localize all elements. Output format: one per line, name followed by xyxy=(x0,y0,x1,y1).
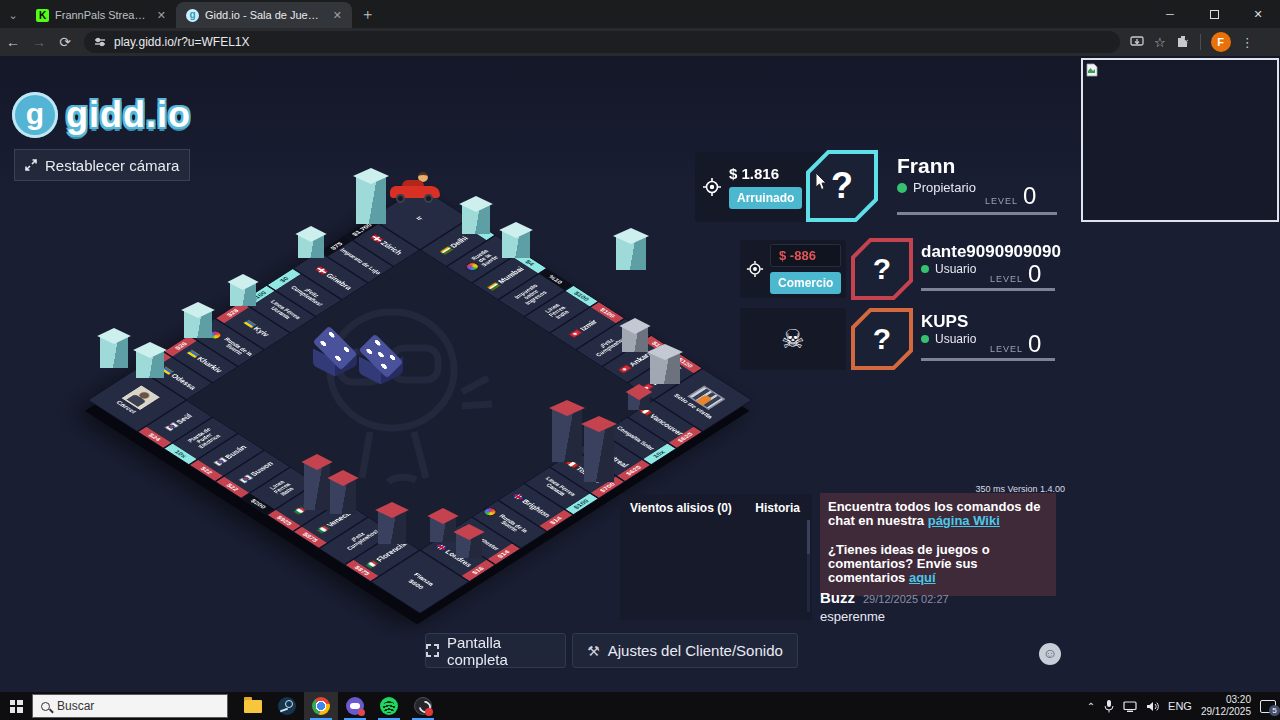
emoji-button[interactable]: ☺ xyxy=(1039,643,1061,665)
start-button[interactable] xyxy=(0,692,32,720)
tab-trade-winds[interactable]: Vientos alisios (0) xyxy=(630,501,732,515)
flag-kr-icon xyxy=(165,422,179,431)
giddio-logo-text: gidd.io xyxy=(66,94,191,136)
online-dot xyxy=(897,183,907,193)
die xyxy=(358,336,404,382)
close-button[interactable]: ✕ xyxy=(1236,0,1280,28)
chat-author: Buzz xyxy=(820,589,855,606)
microphone-icon[interactable] xyxy=(1104,700,1114,713)
player2-level-bar xyxy=(921,288,1055,291)
kick-favicon: K xyxy=(36,9,49,22)
player1-money: $ 1.816 xyxy=(729,165,802,182)
flag-kr-icon xyxy=(239,474,253,483)
die xyxy=(312,328,358,374)
steam-icon[interactable] xyxy=(270,692,304,720)
install-icon[interactable] xyxy=(1130,36,1144,48)
building xyxy=(100,328,128,368)
winds-history-panel: Vientos alisios (0) Historia xyxy=(620,494,812,620)
broken-image-icon xyxy=(1086,63,1098,77)
player1-name: Frann xyxy=(897,154,955,178)
new-tab-button[interactable]: ＋ xyxy=(360,5,375,24)
feedback-link[interactable]: aquí xyxy=(909,570,936,585)
obs-icon[interactable] xyxy=(406,692,440,720)
player2-level: LEVEL 0 xyxy=(990,260,1041,288)
game-page: Ir Sólo de visita Fianza $600 Cárcel $2D… xyxy=(0,56,1280,692)
online-dot xyxy=(921,265,929,273)
taskbar-apps xyxy=(236,692,440,720)
profile-avatar[interactable]: F xyxy=(1211,32,1231,52)
building xyxy=(230,274,256,306)
building xyxy=(378,502,406,544)
player1-level-bar xyxy=(897,212,1057,215)
fullscreen-icon xyxy=(426,644,439,657)
taskbar-search[interactable]: Buscar xyxy=(32,694,228,718)
clock-date: 29/12/2025 xyxy=(1201,706,1251,718)
tab-search-chevron-icon[interactable]: ⌄ xyxy=(0,2,26,28)
search-icon xyxy=(41,702,50,711)
player1-role: Propietario xyxy=(897,180,976,195)
giddio-favicon: g xyxy=(186,9,199,22)
system-tray: ⌃ ENG 03:20 29/12/2025 5 xyxy=(1087,692,1276,720)
target-icon[interactable] xyxy=(746,260,764,278)
tab-title: FrannPals Stream - Watch Live xyxy=(55,9,149,21)
volume-icon[interactable] xyxy=(1146,701,1159,712)
building xyxy=(304,454,330,510)
scrollbar[interactable] xyxy=(807,520,810,612)
building xyxy=(650,344,680,384)
player3-status-box: ☠ xyxy=(740,308,846,370)
back-icon[interactable]: ← xyxy=(0,34,26,50)
chrome-icon[interactable] xyxy=(304,692,338,720)
giddio-logo-icon: g xyxy=(12,92,58,138)
player3-level: LEVEL 0 xyxy=(990,330,1041,358)
online-dot xyxy=(921,335,929,343)
target-icon[interactable] xyxy=(702,177,722,197)
stream-overlay-box xyxy=(1081,58,1279,222)
building xyxy=(622,318,648,352)
mouse-cursor xyxy=(812,172,828,192)
building xyxy=(616,228,646,270)
player1-level: LEVEL 0 xyxy=(985,182,1036,210)
player2-money: $ -886 xyxy=(770,244,841,267)
notification-badge: 5 xyxy=(1269,705,1280,716)
chat-message-header: Buzz 29/12/2025 02:27 xyxy=(820,589,949,606)
reload-icon[interactable]: ⟳ xyxy=(52,34,78,50)
tab-close-icon[interactable]: ✕ xyxy=(155,9,168,22)
player1-action-button[interactable]: Arruinado xyxy=(729,187,802,209)
player2-name: dante9090909090 xyxy=(921,242,1061,262)
divider xyxy=(1200,34,1201,50)
chat-wiki-message: Encuentra todos los comandos de chat en … xyxy=(820,493,1056,596)
skull-icon: ☠ xyxy=(781,324,804,355)
building xyxy=(552,400,582,462)
tab-history[interactable]: Historia xyxy=(755,501,800,515)
notification-icon[interactable]: 5 xyxy=(1260,700,1276,713)
discord-icon[interactable] xyxy=(338,692,372,720)
reset-camera-button[interactable]: Restablecer cámara xyxy=(14,149,190,181)
menu-kebab-icon[interactable]: ⋮ xyxy=(1241,35,1254,50)
minimize-button[interactable]: ─ xyxy=(1148,0,1192,28)
building xyxy=(330,470,356,514)
player1-money-box: $ 1.816 Arruinado xyxy=(695,152,825,222)
giddio-logo[interactable]: g gidd.io xyxy=(12,92,191,138)
reset-camera-icon xyxy=(24,158,38,172)
building xyxy=(628,384,650,410)
building xyxy=(136,342,164,378)
tab-frannpals[interactable]: K FrannPals Stream - Watch Live ✕ xyxy=(26,2,176,28)
tune-icon xyxy=(94,36,106,48)
search-placeholder: Buscar xyxy=(57,699,94,713)
flag-it-icon xyxy=(315,525,329,534)
taskbar-clock[interactable]: 03:20 29/12/2025 xyxy=(1201,694,1251,718)
forward-icon[interactable]: → xyxy=(26,34,52,50)
building xyxy=(584,416,614,482)
url-text: play.gidd.io/r?u=WFEL1X xyxy=(114,35,250,49)
player2-action-button[interactable]: Comercio xyxy=(770,272,841,294)
building xyxy=(462,196,490,234)
taskbar: Buscar ⌃ ENG 03:20 29/12/2025 5 xyxy=(0,692,1280,720)
extensions-icon[interactable] xyxy=(1176,35,1190,49)
address-bar[interactable]: play.gidd.io/r?u=WFEL1X xyxy=(84,31,1120,53)
player3-level-bar xyxy=(921,358,1055,361)
flag-kr-icon xyxy=(214,457,228,466)
chat-message-text: esperenme xyxy=(820,609,885,624)
flag-it-icon xyxy=(365,560,379,569)
toolbar-right: ☆ F ⋮ xyxy=(1130,32,1262,52)
client-settings-button[interactable]: ⚒ Ajustes del Cliente/Sonido xyxy=(572,633,798,668)
player2-role: Usuario xyxy=(921,262,976,276)
bookmark-star-icon[interactable]: ☆ xyxy=(1154,35,1166,50)
browser-tabstrip: ⌄ K FrannPals Stream - Watch Live ✕ g Gi… xyxy=(0,0,1280,28)
building xyxy=(430,508,456,542)
wiki-link[interactable]: página Wiki xyxy=(928,513,1000,528)
building xyxy=(356,168,386,224)
window-controls: ─ ✕ xyxy=(1148,0,1280,28)
clock-time: 03:20 xyxy=(1201,694,1251,706)
tools-icon: ⚒ xyxy=(587,643,600,659)
building xyxy=(456,524,482,558)
player3-role: Usuario xyxy=(921,332,976,346)
tab-title: Gidd.io - Sala de Juegos de Fra xyxy=(205,9,325,21)
restore-button[interactable] xyxy=(1192,0,1236,28)
building xyxy=(298,226,324,258)
tray-chevron-icon[interactable]: ⌃ xyxy=(1087,701,1095,712)
spotify-icon[interactable] xyxy=(372,692,406,720)
file-explorer-icon[interactable] xyxy=(236,692,270,720)
building xyxy=(184,302,212,338)
tab-giddio[interactable]: g Gidd.io - Sala de Juegos de Fra ✕ xyxy=(176,2,352,28)
player2-money-box: $ -886 Comercio xyxy=(740,240,846,298)
player2-avatar[interactable]: ? xyxy=(851,238,913,300)
building xyxy=(502,222,530,258)
player3-avatar[interactable]: ? xyxy=(851,308,913,370)
fullscreen-button[interactable]: Pantalla completa xyxy=(425,633,566,668)
network-icon[interactable] xyxy=(1123,701,1137,712)
chat-timestamp: 29/12/2025 02:27 xyxy=(863,593,949,605)
player3-name: KUPS xyxy=(921,312,968,332)
windows-logo-icon xyxy=(10,700,23,713)
tab-close-icon[interactable]: ✕ xyxy=(331,9,344,22)
browser-toolbar: ← → ⟳ play.gidd.io/r?u=WFEL1X ☆ F ⋮ xyxy=(0,28,1280,56)
screen: ⌄ K FrannPals Stream - Watch Live ✕ g Gi… xyxy=(0,0,1280,720)
language-indicator[interactable]: ENG xyxy=(1168,700,1192,712)
